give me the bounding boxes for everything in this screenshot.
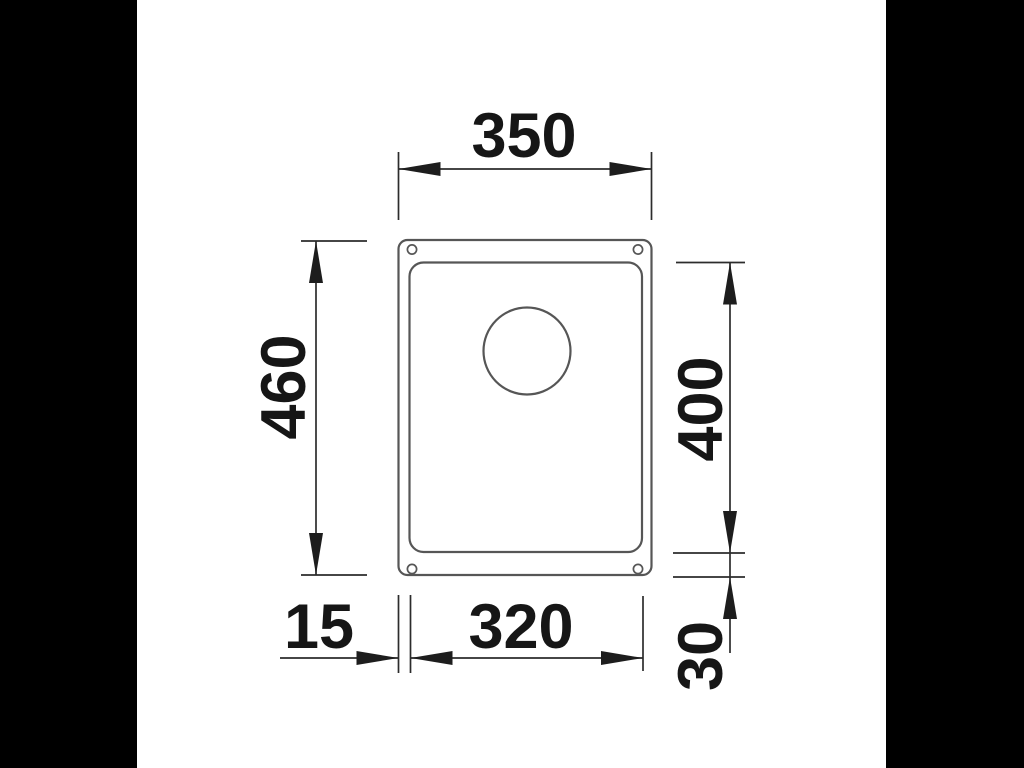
dim-label-bowl-depth: 400: [666, 356, 736, 461]
mounting-hole-top-right: [633, 245, 642, 254]
drain-hole: [484, 308, 571, 395]
technical-drawing: 350 460 400 30: [0, 0, 1024, 768]
screenshot-stage: 350 460 400 30: [0, 0, 1024, 768]
dim-label-bottom-rim: 30: [666, 621, 736, 691]
dim-label-overall-depth: 460: [249, 334, 319, 439]
sink-bowl: [410, 263, 643, 553]
dim-label-left-rim: 15: [284, 592, 354, 662]
dim-label-bowl-width: 320: [468, 592, 573, 662]
letterbox-bar-left: [0, 0, 137, 768]
dim-label-overall-width: 350: [471, 101, 576, 171]
sink-outline: [399, 240, 652, 575]
mounting-hole-top-left: [407, 245, 416, 254]
mounting-hole-bottom-left: [407, 564, 416, 573]
letterbox-bar-right: [886, 0, 1024, 768]
mounting-hole-bottom-right: [633, 564, 642, 573]
